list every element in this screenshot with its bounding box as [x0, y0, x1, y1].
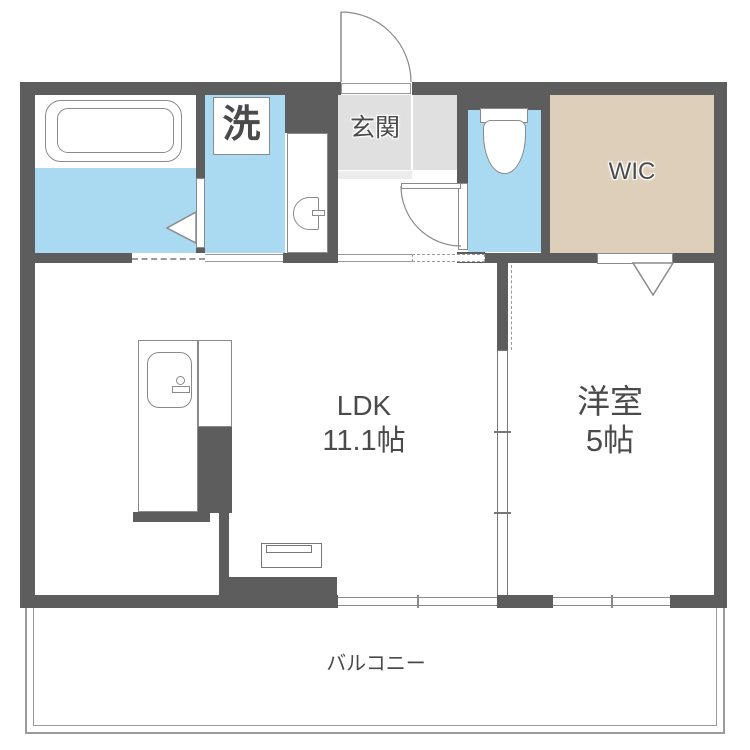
opening-dashed-under-bath: [132, 253, 205, 260]
laundry-label: 洗: [222, 102, 260, 150]
bathroom-floor: [35, 168, 196, 253]
kitchen-counter-side: [198, 340, 232, 427]
bottom-wall-right: [670, 595, 727, 608]
sliding-partition-tick-1: [494, 431, 511, 433]
window-ldk-tick: [417, 595, 419, 608]
opening-hall-ldk: [338, 254, 412, 262]
partition-dashed-line: [508, 265, 512, 350]
washstand-counter: [287, 133, 328, 253]
bathtub-inner: [57, 108, 174, 153]
washroom-hall-wall: [328, 133, 338, 253]
tv-board-inner: [266, 545, 312, 553]
ldk-size-label: 11.1帖: [264, 423, 464, 459]
washstand-tap: [312, 210, 325, 216]
bedroom-label-group: 洋室 5帖: [510, 381, 710, 461]
wic-door-opening: [597, 253, 673, 264]
mid-wall-under-bath-left: [20, 253, 132, 263]
kitchen-wall-right: [198, 427, 232, 513]
kitchen-wall-vertical: [219, 513, 229, 597]
toilet-door-jamb: [458, 183, 468, 250]
entrance-label: 玄関: [325, 113, 425, 144]
opening-dashed-hall: [412, 254, 485, 262]
sliding-partition-tick-2: [494, 512, 511, 514]
bottom-wall-center: [497, 595, 553, 608]
mid-wall-under-toilet: [485, 253, 597, 263]
kitchen-wall-bottom: [133, 512, 210, 522]
entrance-door-arc: [341, 12, 411, 82]
balcony-label: バルコニー: [276, 652, 476, 677]
floor-plan: 洗 LDK 11.1帖 洋室 5帖 WIC 玄関 バルコニー: [0, 0, 750, 750]
bath-laundry-wall-upper: [196, 95, 205, 178]
ldk-label: LDK: [264, 388, 464, 423]
outer-wall-top-left: [20, 82, 341, 95]
bath-door-opening: [196, 178, 205, 248]
partition-wall-stub: [497, 263, 508, 350]
toilet-door-arc: [401, 186, 461, 246]
outer-wall-top-right: [412, 82, 727, 95]
window-bedroom-tick: [611, 595, 613, 608]
entrance-door-opening: [341, 83, 411, 94]
kitchen-tap-knob: [176, 376, 185, 385]
mid-wall-under-wic-right: [673, 253, 727, 263]
wic-label: WIC: [550, 157, 714, 187]
sliding-partition: [497, 350, 508, 595]
kitchen-tap-bar: [172, 386, 190, 393]
outer-wall-right: [714, 82, 727, 605]
mid-wall-under-washstand: [283, 253, 338, 263]
toilet-wic-wall: [541, 110, 550, 253]
entrance-step: [338, 170, 412, 179]
opening-laundry-ldk: [205, 254, 283, 262]
wic-folding-door-icon: [633, 263, 673, 295]
bedroom-size-label: 5帖: [510, 422, 710, 461]
kitchen-sink: [147, 352, 192, 408]
washing-machine-box: 洗: [213, 97, 270, 155]
ldk-label-group: LDK 11.1帖: [264, 388, 464, 459]
kitchen-wall-chunk: [229, 577, 337, 608]
toilet-door-leaf: [401, 183, 461, 189]
outer-wall-left: [20, 82, 35, 608]
bedroom-label: 洋室: [510, 381, 710, 422]
